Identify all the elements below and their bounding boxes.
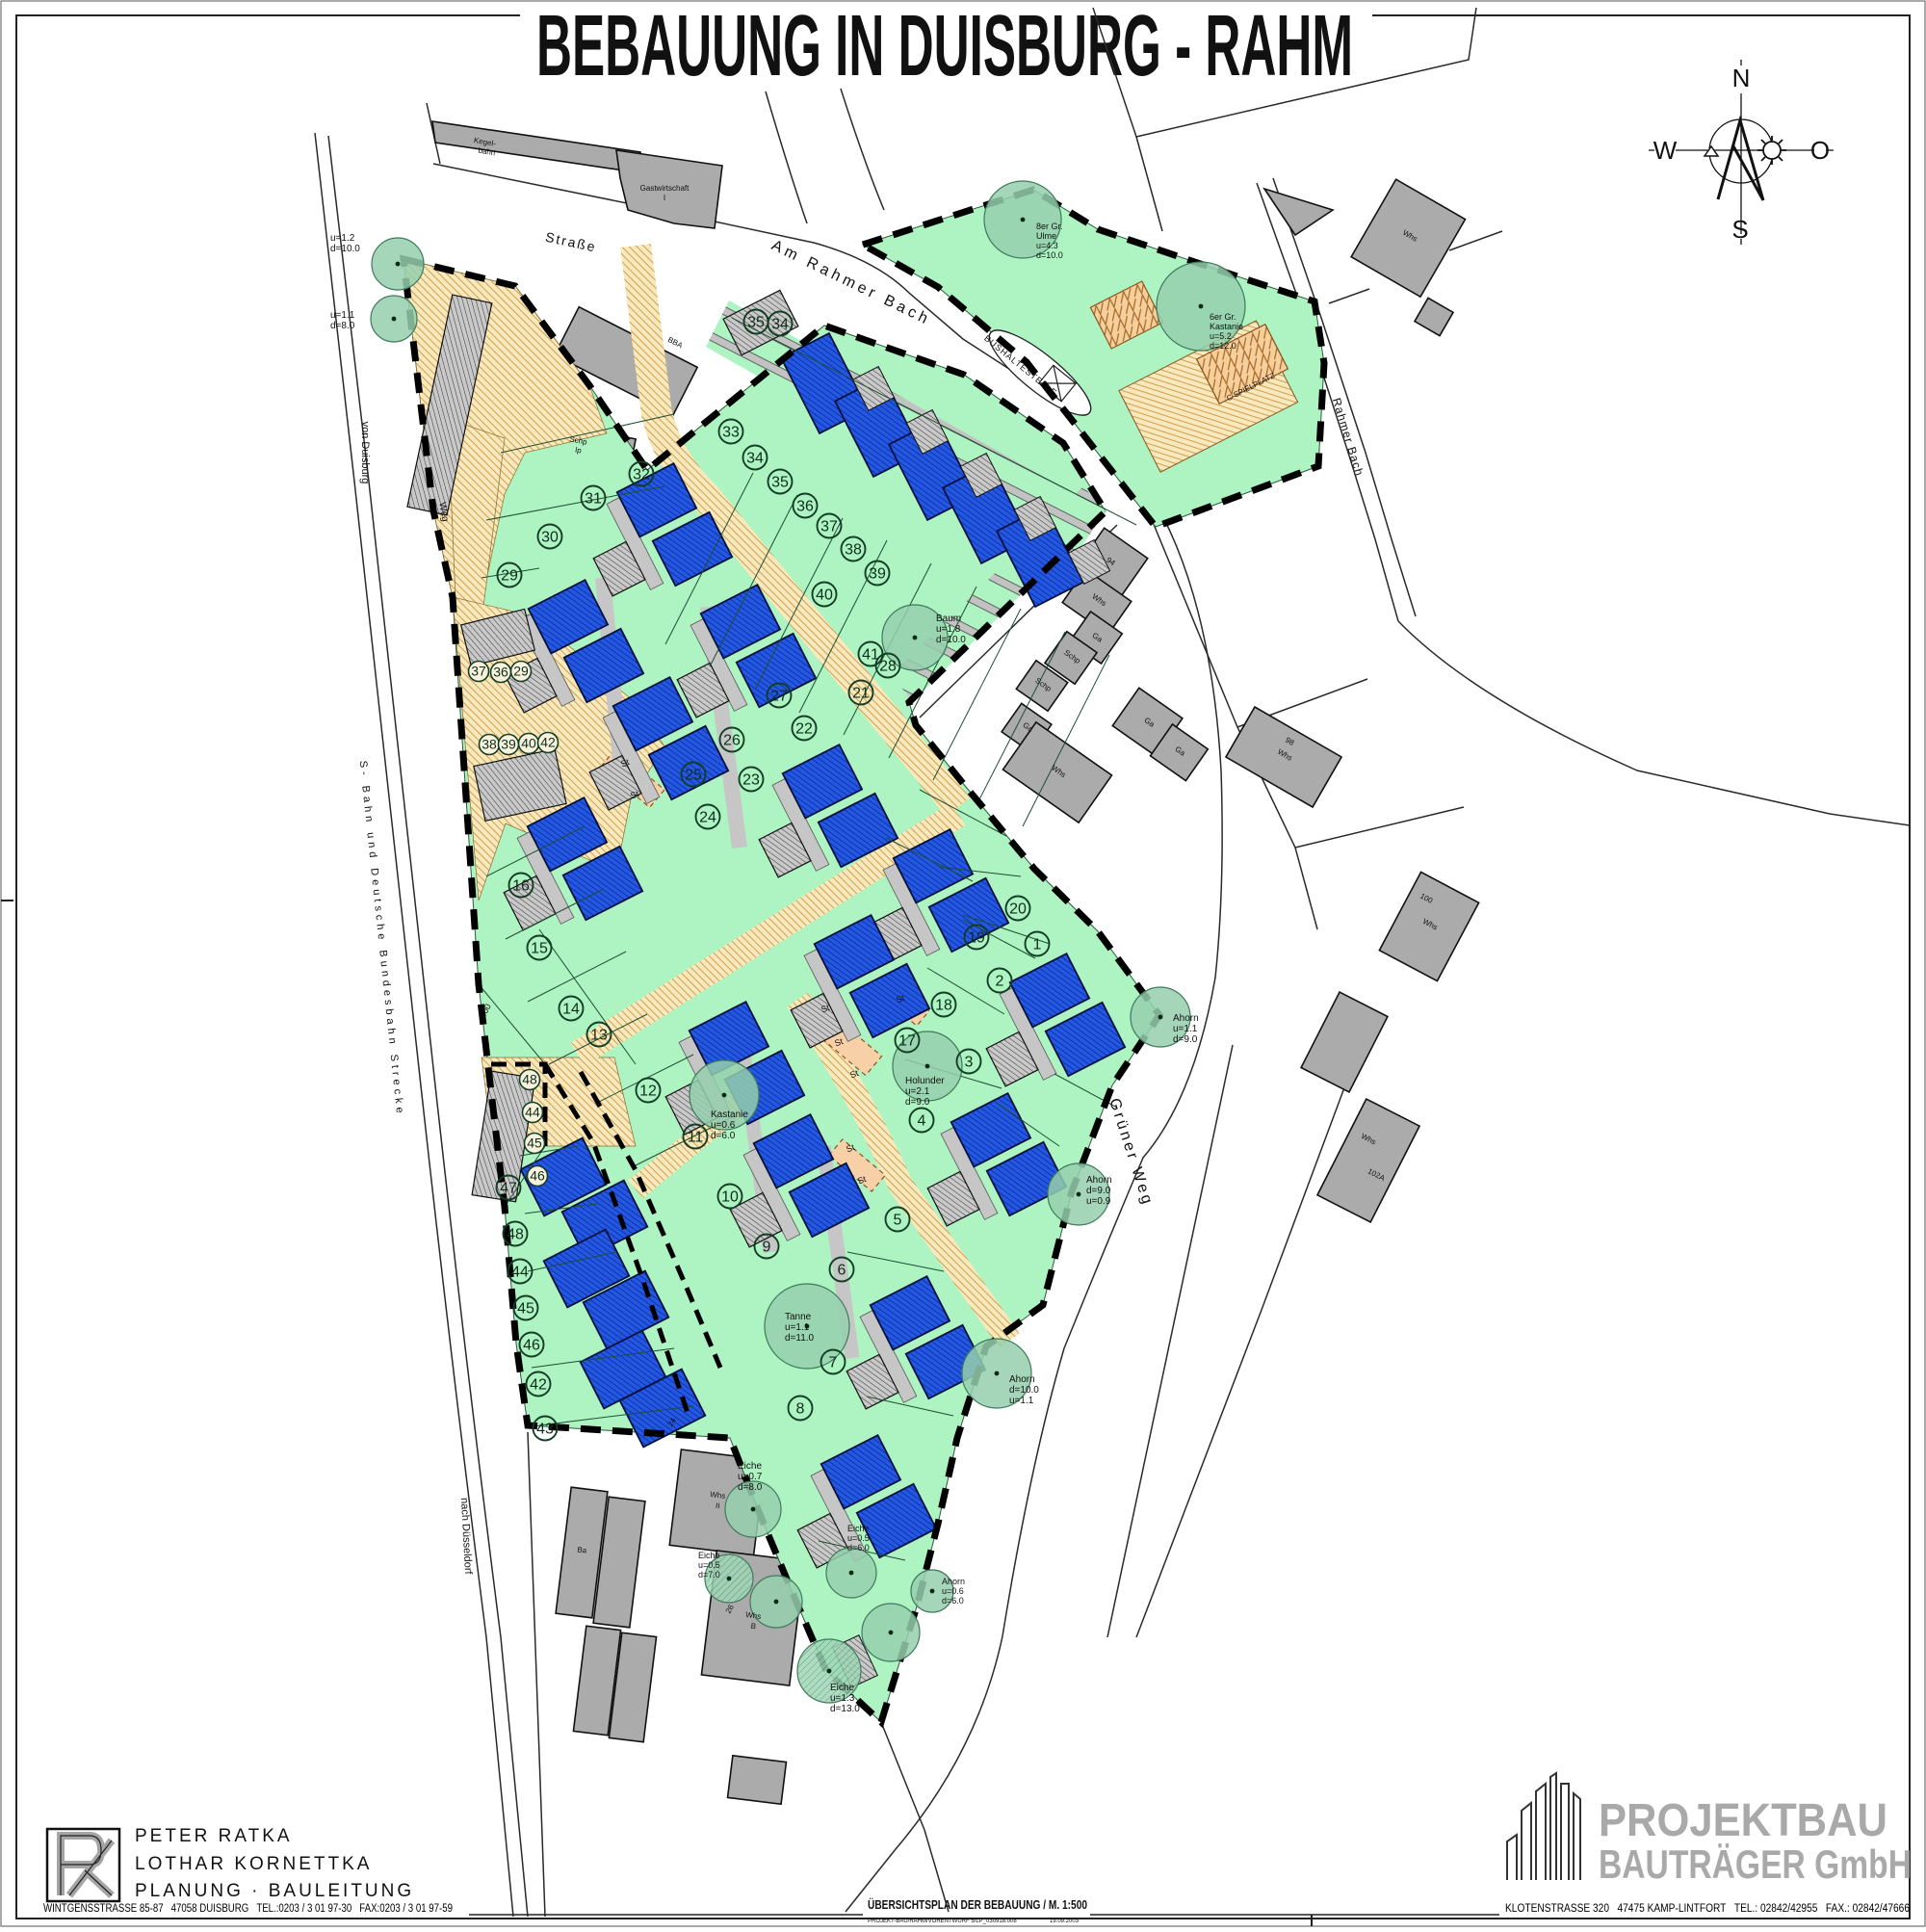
svg-text:16: 16 (512, 878, 530, 895)
svg-text:u=1.8: u=1.8 (936, 624, 961, 635)
svg-text:Holunder: Holunder (905, 1076, 945, 1086)
svg-text:u=0.9: u=0.9 (1086, 1196, 1111, 1207)
svg-text:21: 21 (852, 686, 870, 702)
svg-text:36: 36 (493, 665, 508, 680)
svg-text:Ahorn: Ahorn (1173, 1013, 1199, 1024)
svg-text:u=1.2: u=1.2 (330, 233, 355, 244)
svg-text:u=1.3: u=1.3 (830, 1693, 855, 1704)
svg-text:u=4.3: u=4.3 (1036, 241, 1058, 250)
svg-text:d=10.0: d=10.0 (1009, 1385, 1039, 1396)
svg-text:d=13.0: d=13.0 (830, 1704, 860, 1714)
svg-text:WINTGENSSTRASSE 85-87 47058: WINTGENSSTRASSE 85-87 47058 DUISBURG TEL… (43, 1903, 453, 1915)
svg-text:d=12.0: d=12.0 (1210, 341, 1236, 351)
svg-text:u=1.1: u=1.1 (330, 310, 355, 321)
svg-text:46: 46 (530, 1168, 545, 1184)
svg-text:5: 5 (894, 1213, 902, 1229)
svg-text:d=9.0: d=9.0 (1173, 1034, 1198, 1045)
svg-text:34: 34 (771, 317, 789, 333)
svg-text:d=8.0: d=8.0 (330, 321, 355, 331)
svg-text:u=2.1: u=2.1 (905, 1086, 930, 1097)
svg-text:Tanne: Tanne (785, 1312, 812, 1322)
svg-text:48: 48 (507, 1227, 524, 1243)
svg-text:BAUTRÄGER GmbH: BAUTRÄGER GmbH (1599, 1841, 1912, 1887)
svg-text:Ulme: Ulme (1036, 231, 1056, 241)
svg-text:7: 7 (829, 1355, 838, 1371)
svg-text:N: N (1732, 64, 1751, 92)
svg-text:46: 46 (523, 1338, 540, 1354)
svg-text:2: 2 (996, 974, 1004, 990)
svg-text:44: 44 (511, 1265, 529, 1281)
svg-text:u=0.6: u=0.6 (711, 1120, 736, 1131)
svg-text:36: 36 (796, 499, 814, 515)
svg-text:Eiche: Eiche (698, 1551, 720, 1560)
svg-text:47: 47 (500, 1181, 517, 1197)
svg-text:13: 13 (590, 1028, 608, 1044)
svg-text:17: 17 (898, 1033, 916, 1050)
svg-text:38: 38 (481, 737, 497, 752)
svg-text:37: 37 (820, 519, 838, 535)
svg-text:24: 24 (699, 810, 716, 826)
svg-text:34: 34 (746, 451, 764, 467)
svg-text:Ahorn: Ahorn (1009, 1374, 1035, 1385)
svg-text:29: 29 (501, 568, 518, 585)
svg-text:30: 30 (541, 530, 559, 546)
svg-text:31: 31 (585, 491, 602, 508)
svg-text:d=6.0: d=6.0 (942, 1596, 964, 1606)
svg-text:d=9.0: d=9.0 (1086, 1186, 1111, 1196)
svg-text:Eiche: Eiche (830, 1683, 854, 1693)
svg-text:44: 44 (525, 1105, 540, 1120)
svg-text:KLOTENSTRASSE 320 47475 KAMP: KLOTENSTRASSE 320 47475 KAMP-LINTFORT TE… (1505, 1903, 1910, 1915)
svg-text:38: 38 (845, 542, 862, 559)
svg-text:29: 29 (513, 664, 529, 679)
svg-text:27: 27 (770, 689, 788, 705)
svg-text:41: 41 (862, 647, 879, 664)
svg-text:14: 14 (562, 1002, 580, 1018)
svg-text:d=9.0: d=9.0 (905, 1097, 930, 1108)
svg-text:6: 6 (838, 1263, 846, 1279)
svg-text:45: 45 (517, 1301, 534, 1318)
svg-text:19: 19 (968, 930, 985, 947)
svg-text:ÜBERSICHTSPLAN DER BEBAUUNG /: ÜBERSICHTSPLAN DER BEBAUUNG / M. 1:500 (868, 1897, 1087, 1912)
svg-text:22: 22 (795, 721, 813, 738)
svg-text:Ba: Ba (577, 1545, 587, 1554)
svg-text:d=11.0: d=11.0 (785, 1333, 815, 1344)
svg-text:d=10.0: d=10.0 (1036, 250, 1063, 260)
svg-text:d=6.0: d=6.0 (711, 1131, 736, 1141)
svg-text:PROJEKTBAU: PROJEKTBAU (1599, 1795, 1887, 1846)
svg-text:PETER RATKA: PETER RATKA (135, 1826, 293, 1846)
svg-text:von Duisburg: von Duisburg (359, 422, 371, 484)
svg-text:42: 42 (540, 735, 556, 750)
svg-text:11: 11 (688, 1130, 704, 1146)
svg-text:I: I (664, 194, 665, 202)
svg-text:O: O (1810, 136, 1830, 165)
svg-text:26: 26 (723, 733, 741, 749)
svg-text:19.09.2003: 19.09.2003 (1050, 1919, 1080, 1924)
svg-text:u=1.1: u=1.1 (1173, 1024, 1198, 1034)
svg-text:10: 10 (721, 1189, 739, 1206)
svg-text:B: B (750, 1622, 756, 1632)
svg-text:Eiche: Eiche (847, 1524, 870, 1533)
svg-text:39: 39 (869, 566, 886, 583)
svg-text:S: S (1731, 215, 1748, 244)
svg-text:4: 4 (918, 1113, 926, 1130)
svg-text:u=0.5: u=0.5 (847, 1533, 870, 1543)
svg-text:LOTHAR KORNETTKA: LOTHAR KORNETTKA (135, 1854, 372, 1874)
svg-text:42: 42 (530, 1377, 547, 1394)
svg-text:40: 40 (521, 736, 536, 751)
svg-text:25: 25 (685, 768, 702, 784)
svg-text:15: 15 (531, 941, 548, 957)
svg-text:35: 35 (771, 475, 789, 491)
svg-text:33: 33 (722, 425, 740, 441)
svg-text:u=0.6: u=0.6 (942, 1586, 964, 1596)
svg-text:u=5.2: u=5.2 (1210, 331, 1232, 341)
svg-text:d=7.0: d=7.0 (698, 1570, 720, 1580)
svg-text:28: 28 (879, 659, 897, 675)
svg-text:u=1.1: u=1.1 (1009, 1396, 1034, 1406)
svg-text:Eiche: Eiche (738, 1461, 762, 1472)
svg-text:8er Gr.: 8er Gr. (1036, 222, 1063, 231)
svg-text:40: 40 (816, 587, 833, 604)
svg-text:35: 35 (747, 315, 765, 331)
svg-text:43: 43 (536, 1422, 554, 1438)
svg-text:32: 32 (633, 467, 650, 483)
svg-text:Ahorn: Ahorn (942, 1577, 965, 1586)
svg-text:PLANUNG · BAULEITUNG: PLANUNG · BAULEITUNG (135, 1881, 414, 1901)
svg-text:9: 9 (763, 1240, 771, 1256)
svg-text:d=8.0: d=8.0 (738, 1482, 763, 1493)
svg-text:12: 12 (639, 1083, 657, 1100)
svg-text:u=0.7: u=0.7 (738, 1472, 763, 1482)
svg-text:3: 3 (965, 1055, 974, 1071)
svg-text:Baum: Baum (936, 614, 961, 624)
svg-text:W: W (1653, 136, 1678, 165)
svg-text:39: 39 (501, 737, 516, 752)
svg-text:23: 23 (742, 772, 760, 789)
svg-text:PROJEKT-BAU/RAHM/VORENTWURF 5/: PROJEKT-BAU/RAHM/VORENTWURF 5/LP_030918.… (868, 1919, 1017, 1924)
svg-text:Gastwirtschaft: Gastwirtschaft (640, 184, 690, 193)
svg-text:d=6.0: d=6.0 (847, 1543, 870, 1553)
svg-text:Kastanie: Kastanie (711, 1110, 748, 1120)
svg-text:48: 48 (522, 1072, 537, 1087)
svg-text:6er Gr.: 6er Gr. (1210, 312, 1236, 322)
svg-text:u=0.5: u=0.5 (698, 1560, 720, 1570)
svg-text:20: 20 (1009, 901, 1027, 918)
svg-text:8: 8 (796, 1401, 805, 1418)
svg-text:d=10.0: d=10.0 (330, 244, 360, 254)
svg-text:Ahorn: Ahorn (1086, 1175, 1112, 1186)
svg-text:1: 1 (1033, 937, 1042, 953)
svg-text:Kastanie: Kastanie (1210, 322, 1243, 331)
svg-text:37: 37 (471, 664, 486, 679)
svg-text:18: 18 (935, 998, 952, 1014)
svg-text:BEBAUUNG IN DUISBURG - RAHM: BEBAUUNG IN DUISBURG - RAHM (536, 0, 1353, 94)
svg-text:d=10.0: d=10.0 (936, 635, 966, 645)
svg-text:45: 45 (527, 1136, 542, 1151)
svg-text:u=1.1: u=1.1 (785, 1322, 810, 1333)
